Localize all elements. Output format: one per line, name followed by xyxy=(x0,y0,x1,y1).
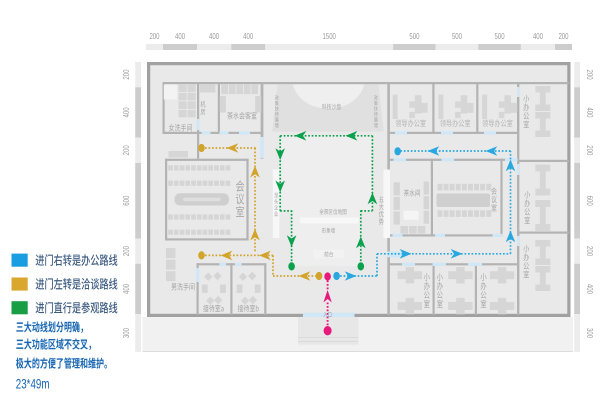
svg-text:500: 500 xyxy=(495,32,506,41)
svg-text:400: 400 xyxy=(175,32,186,41)
svg-text:200: 200 xyxy=(558,32,569,41)
svg-text:200: 200 xyxy=(149,32,160,41)
svg-text:200: 200 xyxy=(585,246,594,257)
svg-text:400: 400 xyxy=(243,32,254,41)
svg-text:300: 300 xyxy=(122,328,131,339)
svg-text:400: 400 xyxy=(533,32,544,41)
svg-text:400: 400 xyxy=(122,283,131,294)
svg-text:1500: 1500 xyxy=(323,32,337,41)
svg-text:400: 400 xyxy=(585,107,594,118)
svg-text:500: 500 xyxy=(452,32,463,41)
svg-text:600: 600 xyxy=(122,195,131,206)
svg-text:600: 600 xyxy=(585,196,594,207)
svg-text:500: 500 xyxy=(409,32,420,41)
svg-text:200: 200 xyxy=(122,246,131,257)
svg-text:400: 400 xyxy=(122,107,131,118)
svg-text:400: 400 xyxy=(585,284,594,295)
svg-text:200: 200 xyxy=(122,69,131,80)
svg-text:300: 300 xyxy=(585,328,594,339)
svg-text:200: 200 xyxy=(122,145,131,156)
svg-text:23*49m: 23*49m xyxy=(16,377,50,392)
svg-text:200: 200 xyxy=(585,145,594,156)
svg-text:200: 200 xyxy=(585,70,594,81)
svg-text:400: 400 xyxy=(209,32,220,41)
